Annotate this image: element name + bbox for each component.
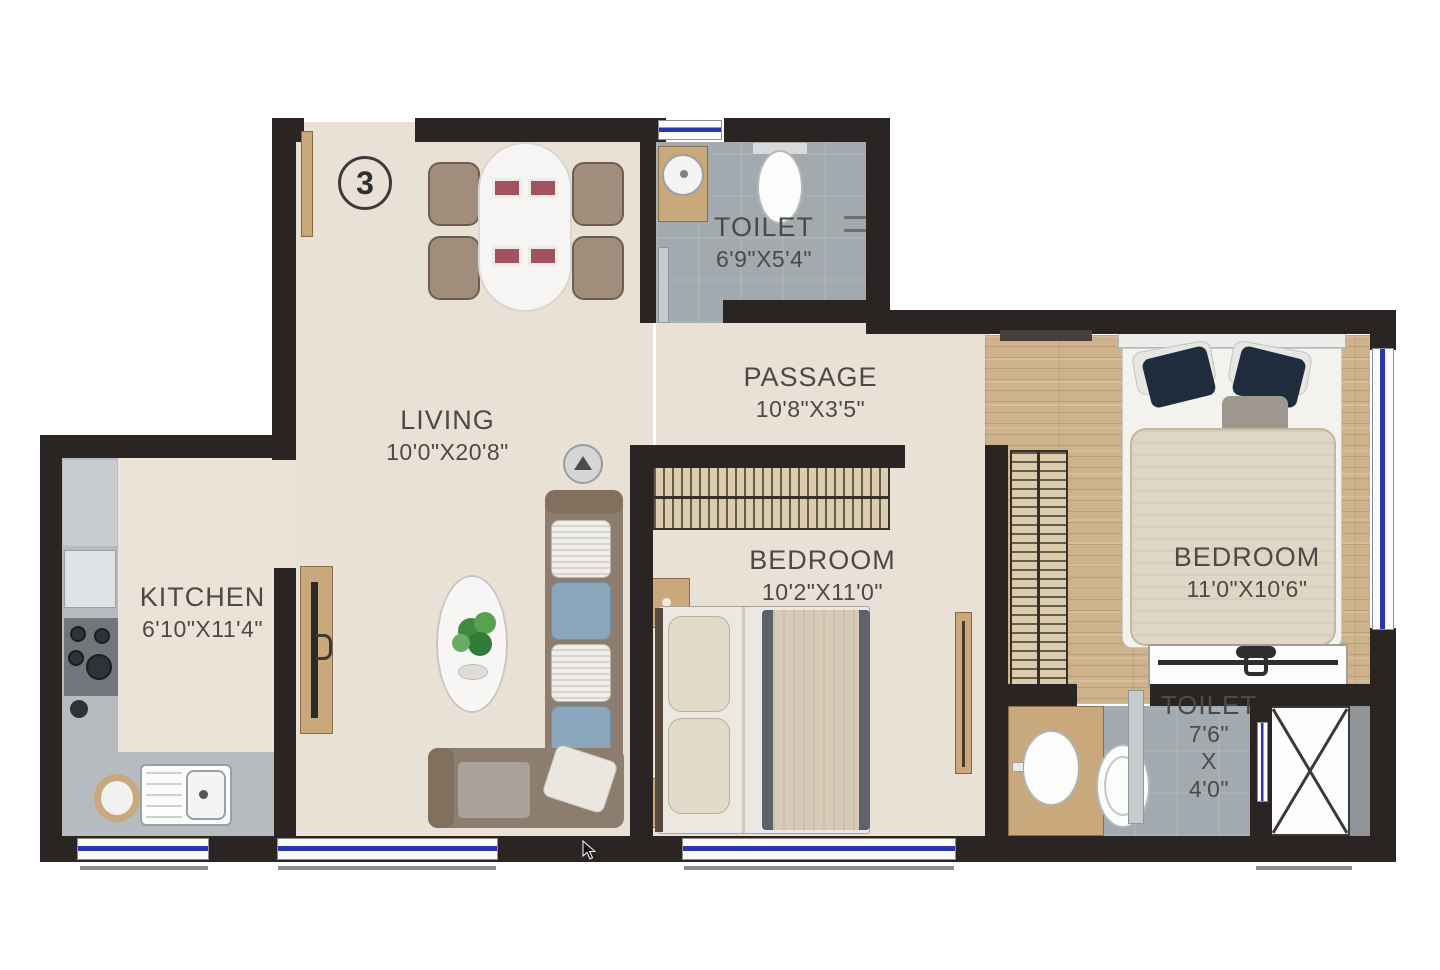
stove-burner <box>86 654 112 680</box>
wall <box>985 445 1008 860</box>
sheet-fold <box>742 607 745 833</box>
room-name: LIVING <box>340 405 555 436</box>
sofa-pillow <box>551 520 611 578</box>
room-name: TOILET <box>655 212 873 243</box>
bedroom-middle-door <box>955 612 972 774</box>
room-dims: 11'0"X10'6" <box>1122 576 1372 602</box>
sink-faucet <box>199 790 208 799</box>
wall <box>640 118 656 323</box>
room-label-toilet-top: TOILET 6'9"X5'4" <box>655 212 873 272</box>
wall <box>1370 310 1396 350</box>
desk-chair-seat <box>1244 654 1268 676</box>
pot <box>70 700 88 718</box>
plant-leaf <box>474 612 496 634</box>
window <box>658 120 722 140</box>
wardrobe <box>652 466 890 530</box>
bed-headboard <box>655 608 663 832</box>
placemat <box>492 178 522 198</box>
wall <box>866 310 1396 334</box>
wall <box>40 435 62 862</box>
window-sill <box>80 866 208 870</box>
unit-number-badge: 3 <box>338 156 392 210</box>
wall <box>1370 684 1396 862</box>
basin-faucet <box>1012 762 1024 772</box>
kitchen-platform <box>63 460 117 546</box>
bowl <box>101 781 133 815</box>
room-name: TOILET <box>1150 692 1268 719</box>
room-label-bedroom-right: BEDROOM 11'0"X10'6" <box>1122 542 1372 602</box>
wall <box>630 445 905 468</box>
bed-pillow <box>668 616 730 712</box>
dining-chair <box>572 162 624 226</box>
wall <box>630 445 653 836</box>
service-shaft <box>1270 706 1350 836</box>
dining-chair <box>428 162 480 226</box>
duct-panel <box>1350 706 1370 836</box>
room-name: BEDROOM <box>700 545 945 576</box>
room-label-kitchen: KITCHEN 6'10"X11'4" <box>95 582 310 642</box>
bed-pillow <box>668 718 730 814</box>
sofa-pillow <box>551 582 611 640</box>
sofa-armrest <box>545 490 623 514</box>
plant-leaf <box>468 632 492 656</box>
window-sill <box>1256 866 1352 870</box>
bed-blanket <box>1130 428 1336 646</box>
room-name: BEDROOM <box>1122 542 1372 573</box>
window-sill <box>278 866 496 870</box>
window <box>682 838 956 860</box>
bed-headboard <box>1118 333 1346 348</box>
folded-blanket <box>458 762 530 818</box>
sink-drainboard <box>146 772 182 820</box>
decor-bowl <box>458 664 488 680</box>
placemat <box>528 178 558 198</box>
sofa-armrest <box>428 748 454 828</box>
entrance-door <box>301 131 313 237</box>
room-label-bedroom-middle: BEDROOM 10'2"X11'0" <box>700 545 945 605</box>
room-name: KITCHEN <box>95 582 310 613</box>
sofa-pillow <box>551 644 611 702</box>
floor-plan: 3 <box>0 0 1440 970</box>
wall <box>40 435 296 458</box>
stove-burner <box>70 626 86 642</box>
bed-blanket <box>762 610 870 830</box>
room-label-passage: PASSAGE 10'8"X3'5" <box>703 362 918 422</box>
window <box>277 838 498 860</box>
dining-chair <box>428 236 480 300</box>
room-dims: 6'10"X11'4" <box>95 616 310 642</box>
wall <box>272 118 296 460</box>
room-dim-width: 7'6" <box>1150 722 1268 746</box>
wall <box>985 684 1077 706</box>
room-dim-height: 4'0" <box>1150 777 1268 801</box>
washbasin <box>1022 730 1080 806</box>
wardrobe <box>1010 450 1068 690</box>
window <box>77 838 209 860</box>
placemat <box>492 246 522 266</box>
window <box>1372 348 1394 630</box>
room-dims: 10'2"X11'0" <box>700 579 945 605</box>
room-dims: 6'9"X5'4" <box>655 246 873 272</box>
door-handle-line <box>962 621 965 767</box>
room-name: PASSAGE <box>703 362 918 393</box>
dining-table <box>478 142 572 312</box>
room-dims: 10'0"X20'8" <box>340 439 555 465</box>
room-label-toilet-bottom: TOILET 7'6" X 4'0" <box>1150 692 1268 801</box>
placemat <box>528 246 558 266</box>
room-label-living: LIVING 10'0"X20'8" <box>340 405 555 465</box>
unit-number: 3 <box>356 165 374 202</box>
wall <box>723 300 890 323</box>
stove-burner <box>68 650 84 666</box>
basin-drain <box>680 170 688 178</box>
toilet-bottom-door <box>1128 690 1144 824</box>
plant-leaf <box>452 634 470 652</box>
kitchen-entry-floor <box>274 458 296 568</box>
room-dim-separator: X <box>1150 749 1268 773</box>
shaft-cross-icon <box>1272 708 1348 834</box>
wall <box>415 118 666 142</box>
entrance-floor <box>302 122 415 144</box>
tv-mount <box>316 634 332 660</box>
bedroom-right-door <box>1000 330 1092 341</box>
dining-chair <box>572 236 624 300</box>
window-sill <box>684 866 954 870</box>
room-dims: 10'8"X3'5" <box>703 396 918 422</box>
mouse-cursor <box>582 840 598 862</box>
